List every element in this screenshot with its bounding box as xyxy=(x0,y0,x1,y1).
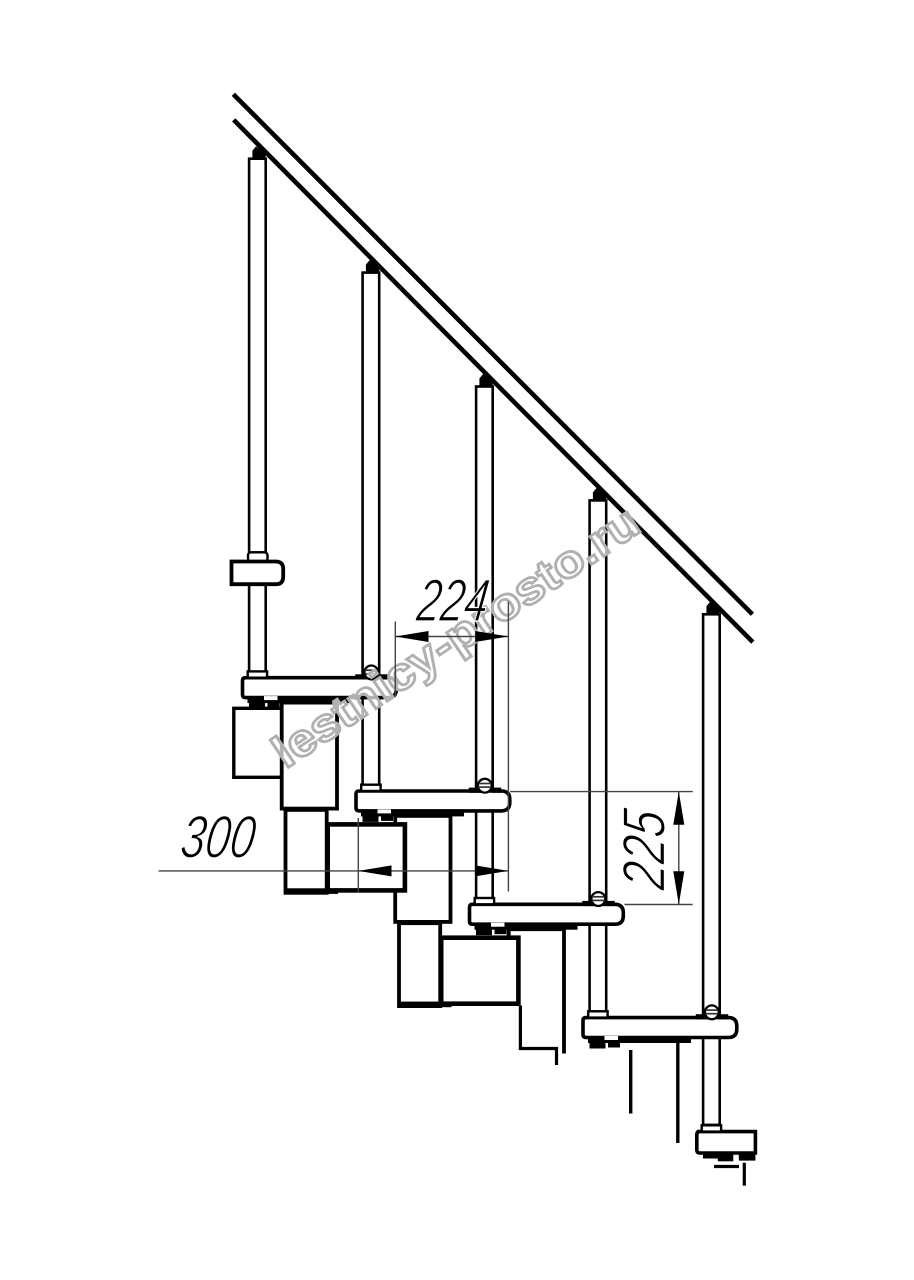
svg-text:300: 300 xyxy=(177,803,261,871)
svg-text:224: 224 xyxy=(413,566,494,634)
svg-text:225: 225 xyxy=(610,805,678,894)
